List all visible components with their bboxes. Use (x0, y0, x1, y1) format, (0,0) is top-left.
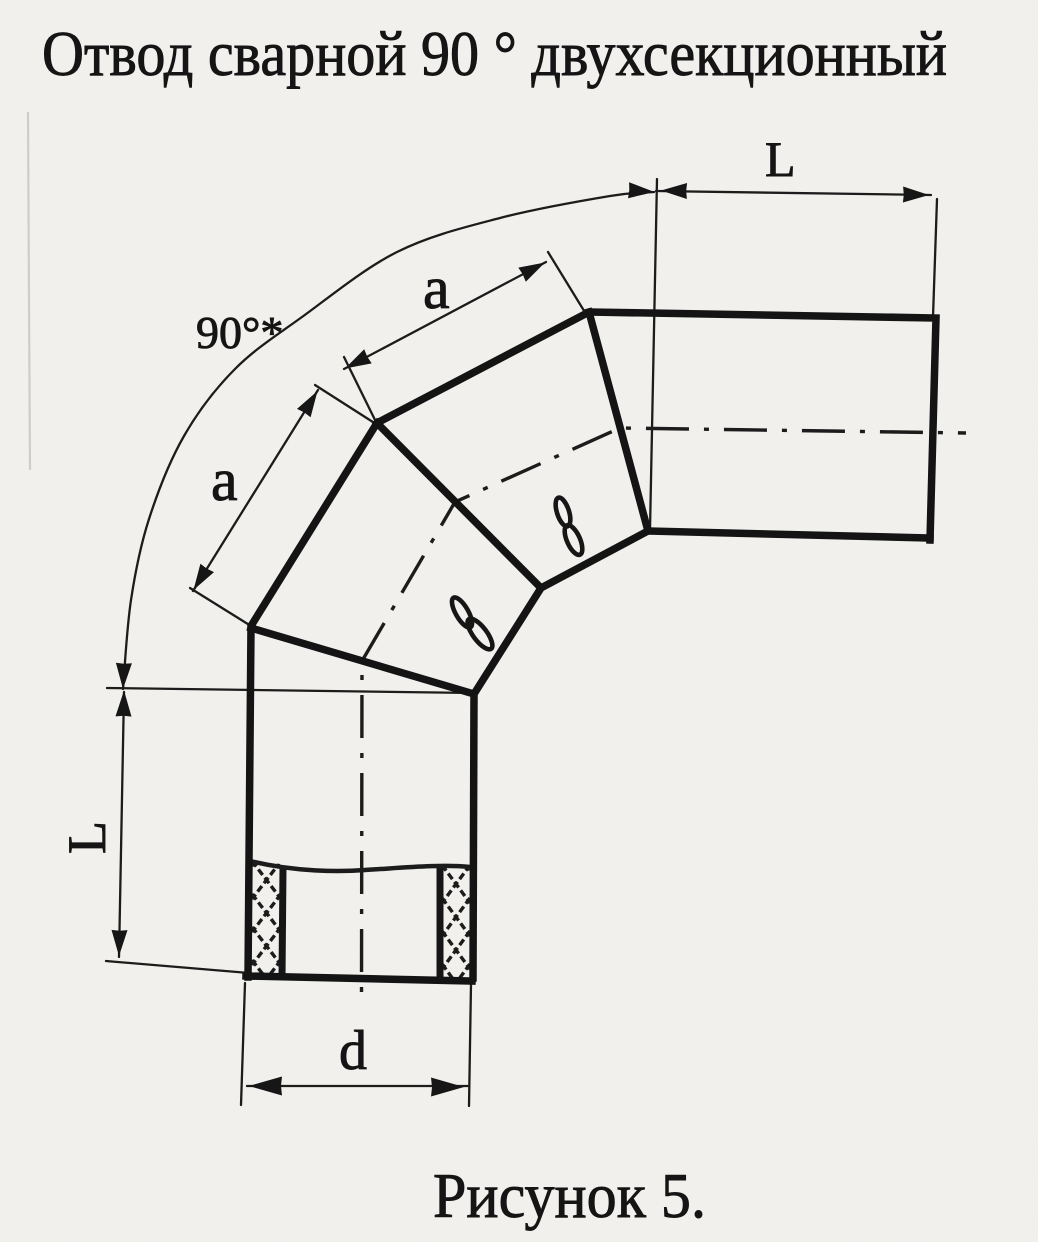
svg-text:Отвод сварной 90 ° двухсекцион: Отвод сварной 90 ° двухсекционный (42, 19, 947, 89)
svg-text:L: L (765, 131, 796, 187)
svg-text:L: L (57, 821, 117, 854)
svg-text:90°*: 90°* (196, 307, 283, 358)
svg-text:Рисунок 5.: Рисунок 5. (433, 1161, 706, 1231)
svg-text:a: a (423, 255, 450, 321)
svg-text:a: a (211, 447, 238, 513)
svg-text:d: d (339, 1020, 367, 1082)
